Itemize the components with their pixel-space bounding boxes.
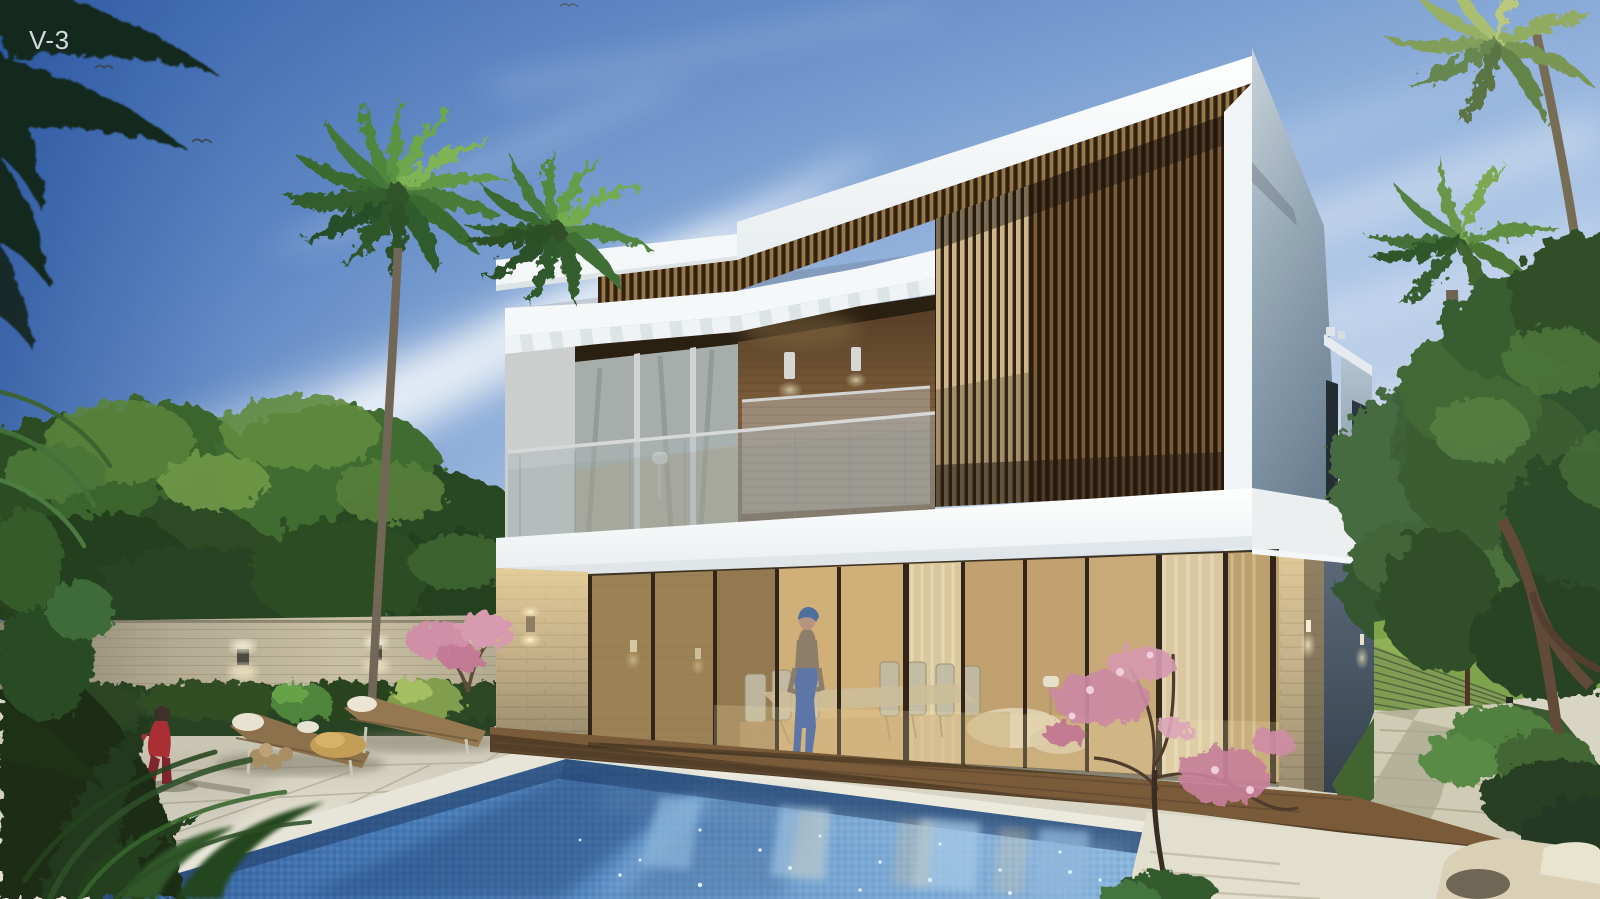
svg-text:V-3: V-3 — [29, 25, 70, 55]
